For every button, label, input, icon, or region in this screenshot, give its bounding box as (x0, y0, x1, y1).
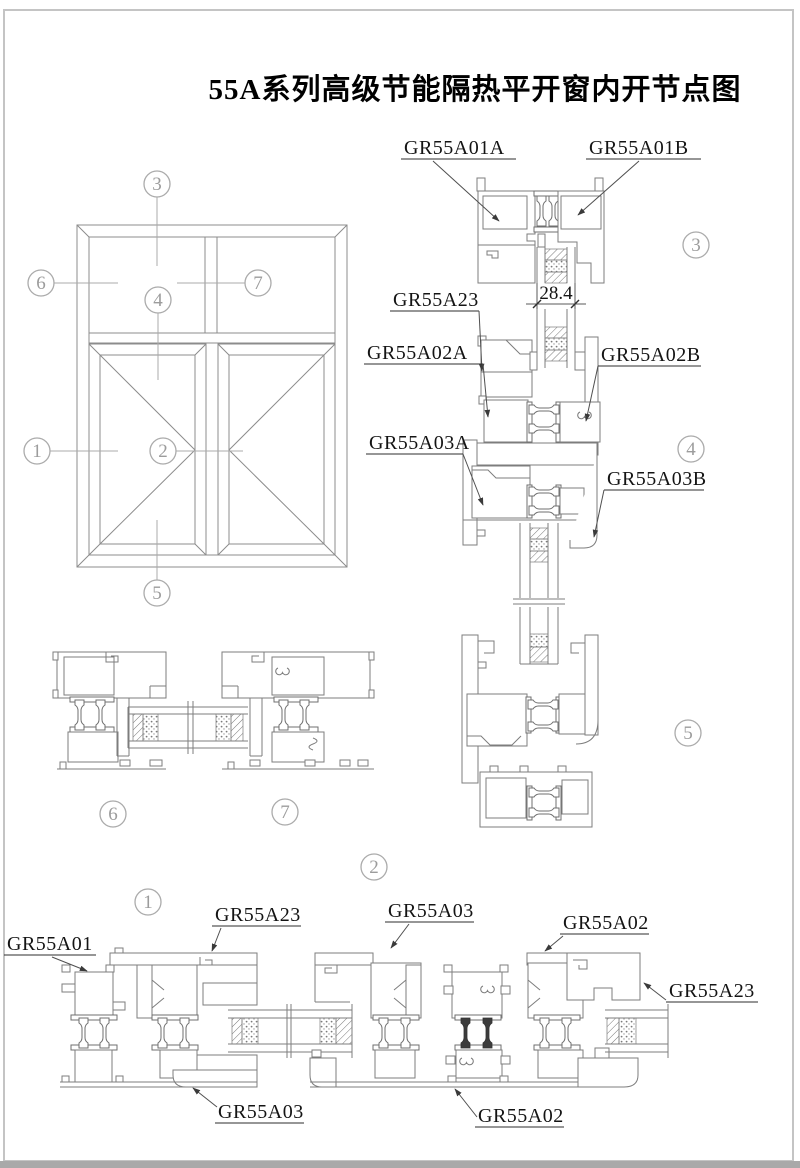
svg-text:1: 1 (32, 441, 42, 462)
glazing-detail-67 (128, 701, 248, 754)
unit-gr55a01 (60, 965, 128, 1087)
opening-symbol-right (229, 355, 324, 544)
transom-chamber-left (484, 400, 528, 442)
svg-text:1: 1 (143, 892, 153, 913)
glazing-unit-lower (513, 523, 565, 664)
section-detail-6 (53, 652, 166, 769)
sill-cover-right (585, 635, 598, 735)
svg-text:2: 2 (158, 441, 168, 462)
label-gr55a23-br: GR55A23 (669, 980, 755, 1002)
drawing-title: 55A系列高级节能隔热平开窗内开节点图 (209, 72, 742, 106)
svg-text:3: 3 (152, 174, 162, 195)
label-gr55a23-top: GR55A23 (393, 289, 479, 311)
sash-left (89, 344, 206, 555)
label-gr55a02a: GR55A02A (367, 342, 468, 364)
unit-gr55a23-head (567, 953, 640, 1000)
break-lines (188, 701, 193, 754)
label-gr55a03-bl: GR55A03 (218, 1101, 304, 1123)
glazing-stipple (545, 260, 567, 272)
thermal-break (529, 424, 559, 433)
page-footer-strip (0, 1161, 800, 1168)
frame-inner (89, 237, 335, 555)
thermal-break-dark (461, 1018, 470, 1048)
glazing-unit-mid (537, 309, 575, 368)
break-lines (513, 599, 565, 604)
detail-67-markers: 6 7 (100, 799, 298, 827)
top-mullion (205, 237, 217, 333)
label-gr55a03a: GR55A03A (369, 432, 470, 454)
dimension-value: 28.4 (539, 283, 573, 304)
label-gr55a01b: GR55A01B (589, 137, 689, 159)
leader-gr55a02-top (545, 936, 563, 951)
leader-gr55a03-br (391, 924, 409, 948)
window-elevation: 3 6 7 4 1 2 5 (24, 171, 347, 606)
elevation-callouts: 3 6 7 4 1 2 5 (24, 171, 271, 606)
label-gr55a01: GR55A01 (7, 933, 93, 955)
svg-text:6: 6 (36, 273, 46, 294)
sill-chamber-main (467, 694, 527, 746)
glazing-hatch (545, 249, 567, 260)
thermal-break-dark (483, 1018, 492, 1048)
glazing-unit-top (537, 247, 575, 283)
label-gr55a02b: GR55A02B (601, 344, 701, 366)
glazing-bottom-left (228, 1004, 352, 1058)
transom-lines (89, 333, 335, 343)
svg-text:4: 4 (153, 290, 163, 311)
glass-pocket (250, 698, 262, 756)
bottom-section-row (60, 948, 668, 1087)
dimension-28-4: 28.4 (526, 283, 586, 309)
unit-mullion (444, 965, 510, 1082)
glazing-bead (173, 1070, 257, 1087)
label-gr55a01a: GR55A01A (404, 137, 505, 159)
leader-gr55a02-bottom (455, 1089, 477, 1117)
thermal-break (549, 196, 558, 226)
glazing-lip (203, 983, 257, 1005)
svg-text:2: 2 (369, 857, 379, 878)
leader-gr55a01b (578, 161, 639, 215)
leader-gr55a23-br (644, 983, 666, 1000)
svg-text:7: 7 (280, 802, 290, 823)
rounded-foot (310, 1058, 336, 1087)
sash-right (218, 344, 335, 555)
opening-symbol-left (100, 355, 195, 544)
upper-sash-bottom-profile (481, 340, 532, 397)
frame-outer (77, 225, 347, 567)
label-gr55a03b: GR55A03B (607, 468, 707, 490)
transom-chamber-right (560, 402, 600, 442)
thermal-break (529, 405, 559, 414)
sill-base (480, 766, 592, 827)
frame-miters (77, 225, 347, 567)
label-gr55a03-br: GR55A03 (388, 900, 474, 922)
svg-text:5: 5 (152, 583, 162, 604)
drawing-sheet: 55A系列高级节能隔热平开窗内开节点图 3 6 (0, 0, 800, 1168)
label-gr55a02-top: GR55A02 (563, 912, 649, 934)
svg-text:5: 5 (683, 723, 693, 744)
cad-canvas: 55A系列高级节能隔热平开窗内开节点图 3 6 (0, 0, 800, 1168)
label-gr55a23-bl: GR55A23 (215, 904, 301, 926)
glazing-hatch (545, 272, 567, 283)
label-gr55a02-bottom: GR55A02 (478, 1105, 564, 1127)
leader-gr55a03-bl (193, 1088, 217, 1107)
glass-pocket (117, 698, 129, 756)
section-detail-7 (222, 652, 374, 769)
thermal-break (537, 196, 546, 226)
leader-gr55a23-bl (212, 928, 221, 951)
svg-text:6: 6 (108, 804, 118, 825)
svg-text:7: 7 (253, 273, 263, 294)
svg-text:4: 4 (686, 439, 696, 460)
glazing-bottom-right (605, 1004, 668, 1058)
break-lines (287, 1004, 291, 1058)
svg-text:3: 3 (691, 235, 701, 256)
rounded-foot (578, 1058, 638, 1087)
